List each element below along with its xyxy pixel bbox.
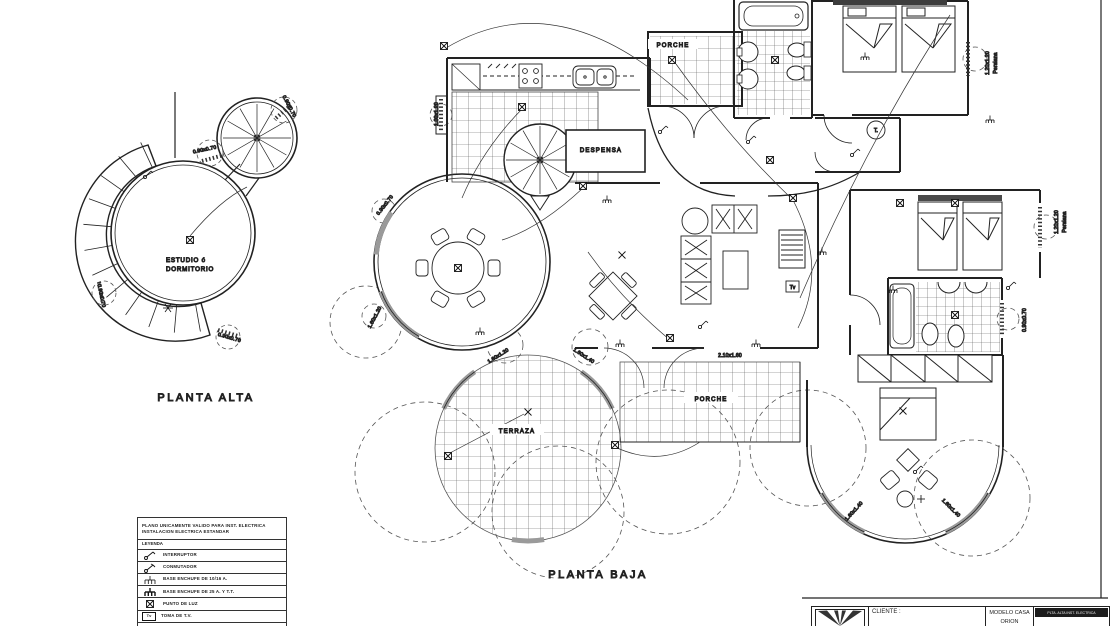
modelo-line2: ORION [986, 618, 1033, 626]
enchufe-icon [603, 196, 611, 204]
caption-planta-baja: PLANTA BAJA [548, 569, 647, 581]
punto-de-luz-icon [445, 453, 452, 460]
interruptor-icon [746, 136, 756, 144]
enchufe-icon [616, 340, 624, 348]
room-label-porche-top: PORCHE [657, 43, 690, 49]
legend-row: INTERRUPTOR [138, 550, 286, 562]
dim-label: 2.10x1.60 [718, 353, 742, 359]
bedroom-top-right [812, 0, 968, 115]
tel-room [815, 118, 900, 172]
bidet [948, 325, 964, 347]
legend-note: PLANO UNICAMENTE VALIDO PARA INST. ELECT… [138, 518, 286, 540]
cliente-field: CLIENTE : [869, 607, 986, 626]
legend-row: Tv TOMA DE T.V. [138, 611, 286, 623]
stamp-field: PLTA. ALTA INST. ELECTRICA [1034, 607, 1109, 626]
fireplace [779, 230, 805, 268]
title-block: CLIENTE : MODELO CASA ORION PLTA. ALTA I… [811, 606, 1110, 626]
enchufe-25-symbol-icon [142, 587, 158, 597]
legend-row: BASE ENCHUFE DE 25 A. Y T.T. [138, 586, 286, 598]
punto-de-luz-icon [952, 200, 959, 207]
interruptor-icon [658, 126, 668, 134]
kitchen-counter [452, 64, 640, 90]
conmutador-symbol-icon [142, 563, 158, 573]
dim-label: 0.90x0.70 [193, 145, 218, 156]
company-logo [812, 607, 869, 626]
aspa-icon [619, 252, 626, 259]
toma-tv-symbol-icon: Tv [142, 612, 156, 621]
dim-label: 1.20x1.20 [985, 51, 991, 75]
legend-row: BASE ENCHUFE DE 10/16 A. [138, 574, 286, 586]
legend-label: PUNTO DE LUZ [163, 602, 198, 606]
coffee-table [723, 251, 748, 289]
legend-label: BASE ENCHUFE DE 25 A. Y T.T. [163, 590, 234, 594]
legend-label: BASE ENCHUFE DE 10/16 A. [163, 577, 227, 581]
legend-row: CONMUTADOR [138, 562, 286, 574]
modelo-field: MODELO CASA ORION [986, 607, 1034, 626]
dim-label: 1.60x1.40 [940, 498, 961, 519]
toilet [922, 323, 938, 345]
dim-label: 1.60x1.40 [572, 347, 595, 365]
punto-de-luz-symbol-icon [142, 599, 158, 609]
bidet [787, 66, 805, 80]
legend-label: INTERRUPTOR [163, 553, 197, 557]
room-label-dormitorio: DORMITORIO [166, 266, 214, 273]
enchufe-icon [752, 340, 760, 348]
bed [843, 6, 896, 72]
room-label-estudio: ESTUDIO ó [166, 257, 206, 264]
dining-table-square [576, 259, 650, 333]
legend-label: TOMA DE T.V. [161, 614, 192, 618]
dim-label: Persiana [993, 52, 999, 73]
bed [880, 388, 936, 440]
punto-de-luz-icon [612, 442, 619, 449]
planta-alta-drawing: ESTUDIO ó DORMITORIO 0.90x0.70 0.90x0.70… [75, 92, 297, 404]
punto-de-luz-icon [952, 312, 959, 319]
legend-note-line2: INSTALACION ELECTRICA ESTANDAR [142, 530, 282, 534]
dim-label: Persiana [1062, 211, 1068, 232]
legend-row: PUNTO DE LUZ [138, 598, 286, 610]
interruptor-icon [1006, 282, 1016, 290]
interruptor-icon [850, 149, 860, 157]
toilet [788, 43, 806, 57]
legend-label: CONMUTADOR [163, 565, 197, 569]
dim-label: 1.00x1.20 [434, 102, 440, 126]
punto-de-luz-icon [772, 57, 779, 64]
legend-heading: LEYENDA [138, 540, 286, 549]
punto-de-luz-icon [767, 157, 774, 164]
sofa-set [681, 205, 757, 304]
drawing-sheet: ESTUDIO ó DORMITORIO 0.90x0.70 0.90x0.70… [0, 0, 1110, 626]
legend-box: PLANO UNICAMENTE VALIDO PARA INST. ELECT… [137, 517, 287, 626]
room-label-terraza: TERRAZA [499, 429, 535, 435]
interruptor-icon [698, 321, 708, 329]
punto-de-luz-icon [580, 183, 587, 190]
room-label-despensa: DESPENSA [580, 148, 622, 154]
punto-de-luz-icon [790, 195, 797, 202]
tv-label: Tv [790, 285, 796, 291]
dim-label: 1.20x1.20 [1054, 210, 1060, 234]
stamp-text: PLTA. ALTA INST. ELECTRICA [1035, 608, 1108, 617]
bed [918, 202, 957, 270]
caption-planta-alta: PLANTA ALTA [157, 392, 254, 404]
punto-de-luz-icon [441, 43, 448, 50]
stove [519, 64, 542, 88]
enchufe-icon [986, 116, 994, 124]
room-label-porche-mid: PORCHE [695, 397, 728, 403]
punto-de-luz-icon [187, 237, 194, 244]
legend-note-line1: PLANO UNICAMENTE VALIDO PARA INST. ELECT… [142, 524, 282, 528]
planta-baja-drawing: T. DESPENSA [330, 0, 1068, 581]
punto-de-luz-icon [455, 265, 462, 272]
punto-de-luz-icon [519, 104, 526, 111]
punto-de-luz-icon [669, 57, 676, 64]
dim-label: 0.90x0.70 [1022, 308, 1028, 332]
armchairs [879, 449, 938, 507]
bed [963, 202, 1002, 270]
tel-label: T. [874, 128, 878, 134]
punto-de-luz-icon [667, 335, 674, 342]
dim-label: 1.60x1.40 [844, 500, 864, 522]
bed [902, 6, 955, 72]
wardrobe [858, 355, 992, 382]
round-room-wall-outer [111, 161, 255, 305]
punto-de-luz-icon [897, 200, 904, 207]
modelo-line1: MODELO CASA [986, 609, 1033, 618]
enchufe-10-16-symbol-icon [142, 575, 158, 585]
side-table [682, 208, 708, 234]
interruptor-symbol-icon [142, 550, 158, 560]
